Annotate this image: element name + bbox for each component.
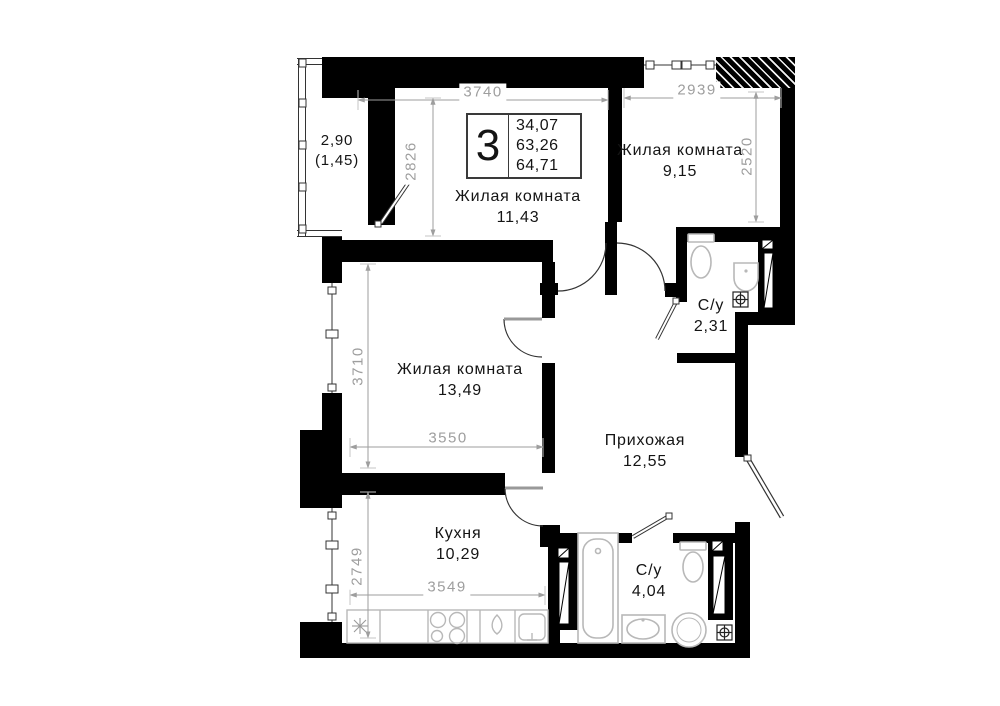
room-name: Жилая комната [455, 186, 581, 207]
balcony-area: 2,90 [315, 131, 359, 151]
window-icon [326, 508, 338, 622]
room-area: 13,49 [397, 380, 523, 401]
window-icon [644, 61, 716, 69]
room-name: Жилая комната [617, 140, 743, 161]
dimension-label: 3549 [423, 579, 470, 596]
apartment-info-box: 3 34,07 63,26 64,71 [466, 113, 582, 179]
sink-icon [622, 615, 665, 643]
area-value: 34,07 [516, 116, 580, 136]
room-name: Прихожая [605, 430, 686, 451]
balcony-area-reduced: (1,45) [315, 151, 359, 171]
floor-plan: 3740 2826 2939 2520 3710 3550 2749 3549 … [0, 0, 1000, 706]
area-value: 63,26 [516, 136, 580, 156]
toilet-icon [688, 234, 714, 278]
room-name: С/у [694, 295, 728, 316]
room-area: 10,29 [435, 544, 482, 565]
room-label-living-right: Жилая комната 9,15 [617, 140, 743, 182]
toilet-icon [680, 542, 706, 582]
room-label-bathroom-small: С/у 2,31 [694, 295, 728, 337]
washing-machine-icon [672, 613, 706, 647]
sink-icon [734, 263, 758, 291]
room-area: 12,55 [605, 451, 686, 472]
room-name: Кухня [435, 523, 482, 544]
plan-drawing-layer [0, 0, 1000, 706]
dimension-label: 3740 [459, 84, 506, 101]
room-label-hallway: Прихожая 12,55 [605, 430, 686, 472]
room-name: Жилая комната [397, 359, 523, 380]
room-area: 4,04 [632, 581, 666, 602]
door-arc [504, 243, 665, 526]
kitchen-counter [347, 610, 548, 643]
dimension-label: 2826 [403, 137, 420, 184]
dimension-label: 2749 [349, 542, 366, 589]
room-label-balcony: 2,90 (1,45) [315, 131, 359, 171]
fridge-icon [352, 618, 368, 634]
room-label-bathroom-large: С/у 4,04 [632, 560, 666, 602]
room-name: С/у [632, 560, 666, 581]
room-area: 9,15 [617, 161, 743, 182]
room-area: 11,43 [455, 207, 581, 228]
dimension-label: 3710 [350, 342, 367, 389]
room-area: 2,31 [694, 316, 728, 337]
room-label-kitchen: Кухня 10,29 [435, 523, 482, 565]
area-value: 64,71 [516, 156, 580, 176]
bathtub-icon [578, 533, 618, 643]
room-label-living-mid: Жилая комната 13,49 [397, 359, 523, 401]
dimension-label: 3550 [424, 430, 471, 447]
drain-icon [717, 625, 732, 640]
window-icon [326, 283, 338, 393]
room-count: 3 [468, 115, 509, 177]
room-label-living-top: Жилая комната 11,43 [455, 186, 581, 228]
drain-icon [733, 292, 748, 307]
dimension-label: 2939 [673, 82, 720, 99]
